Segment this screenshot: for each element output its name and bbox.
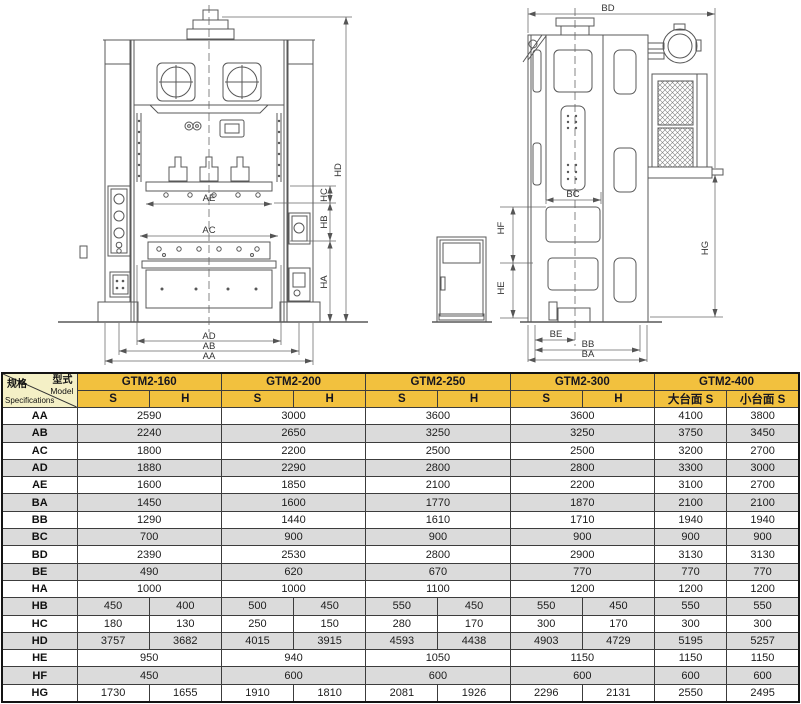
corner-model-label-zh: 型式: [53, 376, 73, 386]
spec-cell: 1290: [77, 511, 221, 528]
dim-label-HB: HB: [319, 215, 330, 228]
sub-header: H: [438, 391, 510, 408]
spec-cell: 3100: [655, 477, 727, 494]
spec-cell: 900: [221, 529, 365, 546]
sub-header: S: [221, 391, 293, 408]
spec-cell: 600: [366, 667, 510, 684]
spec-row-HD: HD37573682401539154593443849034729519552…: [2, 632, 799, 649]
spec-row-HF: HF450600600600600600: [2, 667, 799, 684]
spec-cell: 1000: [221, 580, 365, 597]
spec-cell: 2800: [510, 459, 654, 476]
spec-cell: 600: [727, 667, 799, 684]
spec-cell: 170: [438, 615, 510, 632]
spec-cell: 1150: [727, 650, 799, 667]
spec-cell: 300: [655, 615, 727, 632]
spec-sheet-page: AE AC AD AB AA HD HC HB HA BD BC HF HE H…: [0, 0, 801, 704]
spec-row-BA: BA145016001770187021002100: [2, 494, 799, 511]
spec-cell: 770: [727, 563, 799, 580]
spec-row-HA: HA100010001100120012001200: [2, 580, 799, 597]
row-label: HD: [2, 632, 77, 649]
dim-label-BA: BA: [582, 349, 595, 360]
spec-cell: 1870: [510, 494, 654, 511]
dim-label-AC: AC: [202, 225, 215, 236]
spec-cell: 3250: [366, 425, 510, 442]
spec-cell: 1655: [149, 684, 221, 702]
spec-cell: 4593: [366, 632, 438, 649]
spec-cell: 490: [77, 563, 221, 580]
spec-cell: 150: [294, 615, 366, 632]
spec-cell: 2296: [510, 684, 582, 702]
row-label: BE: [2, 563, 77, 580]
spec-cell: 900: [366, 529, 510, 546]
spec-cell: 1200: [655, 580, 727, 597]
spec-cell: 3600: [366, 408, 510, 425]
dim-label-BD: BD: [601, 3, 614, 14]
spec-cell: 2900: [510, 546, 654, 563]
model-header-gtm2-400: GTM2-400: [655, 373, 800, 391]
spec-cell: 1000: [77, 580, 221, 597]
spec-cell: 3682: [149, 632, 221, 649]
spec-cell: 1600: [77, 477, 221, 494]
spec-cell: 300: [727, 615, 799, 632]
spec-row-HB: HB450400500450550450550450550550: [2, 598, 799, 615]
spec-cell: 770: [510, 563, 654, 580]
spec-cell: 4729: [582, 632, 654, 649]
spec-cell: 450: [582, 598, 654, 615]
spec-cell: 450: [77, 598, 149, 615]
spec-cell: 1200: [727, 580, 799, 597]
row-label: HF: [2, 667, 77, 684]
spec-cell: 2495: [727, 684, 799, 702]
spec-cell: 600: [655, 667, 727, 684]
bolt-hole-dots: [567, 115, 577, 180]
corner-header: 型式 Model 规格 Specifications: [2, 373, 77, 408]
model-header-gtm2-160: GTM2-160: [77, 373, 221, 391]
model-header-gtm2-300: GTM2-300: [510, 373, 654, 391]
spec-cell: 2650: [221, 425, 365, 442]
spec-row-BD: BD239025302800290031303130: [2, 546, 799, 563]
model-header-gtm2-250: GTM2-250: [366, 373, 510, 391]
spec-cell: 3250: [510, 425, 654, 442]
spec-cell: 4903: [510, 632, 582, 649]
spec-cell: 550: [366, 598, 438, 615]
spec-cell: 250: [221, 615, 293, 632]
spec-cell: 2290: [221, 459, 365, 476]
dim-label-HE: HE: [496, 281, 507, 294]
spec-cell: 1770: [366, 494, 510, 511]
technical-drawings: AE AC AD AB AA HD HC HB HA BD BC HF HE H…: [0, 0, 801, 372]
row-label: HA: [2, 580, 77, 597]
spec-table-header: 型式 Model 规格 Specifications GTM2-160 GTM2…: [2, 373, 799, 408]
spec-cell: 2550: [655, 684, 727, 702]
dim-label-HD: HD: [333, 163, 344, 177]
spec-cell: 940: [221, 650, 365, 667]
spec-cell: 2100: [366, 477, 510, 494]
row-label: AB: [2, 425, 77, 442]
spec-row-HG: HG17301655191018102081192622962131255024…: [2, 684, 799, 702]
spec-row-BC: BC700900900900900900: [2, 529, 799, 546]
row-label: HB: [2, 598, 77, 615]
spec-row-AE: AE160018502100220031002700: [2, 477, 799, 494]
row-label: BD: [2, 546, 77, 563]
row-label: AA: [2, 408, 77, 425]
spec-cell: 1050: [366, 650, 510, 667]
sub-header: 大台面 S: [655, 391, 727, 408]
spec-cell: 3800: [727, 408, 799, 425]
spec-cell: 550: [510, 598, 582, 615]
spec-cell: 1450: [77, 494, 221, 511]
spec-cell: 1926: [438, 684, 510, 702]
spec-cell: 2200: [510, 477, 654, 494]
spec-cell: 2700: [727, 477, 799, 494]
spec-cell: 2500: [510, 442, 654, 459]
spec-row-HC: HC180130250150280170300170300300: [2, 615, 799, 632]
spec-cell: 1880: [77, 459, 221, 476]
spec-cell: 1810: [294, 684, 366, 702]
spec-table-body: AA259030003600360041003800AB224026503250…: [2, 408, 799, 703]
row-label: HG: [2, 684, 77, 702]
spec-cell: 550: [655, 598, 727, 615]
row-label: AD: [2, 459, 77, 476]
spec-row-AA: AA259030003600360041003800: [2, 408, 799, 425]
sub-header: 小台面 S: [727, 391, 799, 408]
spec-cell: 2100: [727, 494, 799, 511]
spec-cell: 3300: [655, 459, 727, 476]
spec-cell: 300: [510, 615, 582, 632]
spec-cell: 1610: [366, 511, 510, 528]
dim-label-AA: AA: [203, 351, 216, 362]
spec-row-AD: AD188022902800280033003000: [2, 459, 799, 476]
spec-cell: 700: [77, 529, 221, 546]
spec-cell: 1730: [77, 684, 149, 702]
spec-cell: 900: [510, 529, 654, 546]
sub-header: H: [294, 391, 366, 408]
spec-cell: 3130: [655, 546, 727, 563]
spec-cell: 600: [510, 667, 654, 684]
spec-cell: 1850: [221, 477, 365, 494]
spec-cell: 450: [77, 667, 221, 684]
spec-cell: 600: [221, 667, 365, 684]
spec-cell: 2131: [582, 684, 654, 702]
centerlines: [209, 5, 575, 346]
row-label: AC: [2, 442, 77, 459]
spec-cell: 3450: [727, 425, 799, 442]
row-label: AE: [2, 477, 77, 494]
spec-cell: 3000: [727, 459, 799, 476]
spec-cell: 4438: [438, 632, 510, 649]
spec-cell: 2700: [727, 442, 799, 459]
spec-cell: 2590: [77, 408, 221, 425]
spec-cell: 4015: [221, 632, 293, 649]
spec-cell: 2240: [77, 425, 221, 442]
spec-cell: 1440: [221, 511, 365, 528]
spec-cell: 670: [366, 563, 510, 580]
spec-cell: 280: [366, 615, 438, 632]
spec-cell: 1150: [510, 650, 654, 667]
model-header-gtm2-200: GTM2-200: [221, 373, 365, 391]
spec-cell: 170: [582, 615, 654, 632]
side-view-drawing: [432, 18, 723, 322]
spec-cell: 1200: [510, 580, 654, 597]
spec-row-BB: BB129014401610171019401940: [2, 511, 799, 528]
sub-header: S: [77, 391, 149, 408]
spec-cell: 1940: [655, 511, 727, 528]
corner-spec-label-zh: 规格: [7, 380, 27, 390]
spec-cell: 2390: [77, 546, 221, 563]
spec-cell: 1600: [221, 494, 365, 511]
spec-cell: 4100: [655, 408, 727, 425]
corner-spec-label-en: Specifications: [5, 397, 54, 405]
spec-cell: 770: [655, 563, 727, 580]
row-label: BC: [2, 529, 77, 546]
dim-label-HC: HC: [319, 188, 330, 202]
spec-cell: 3200: [655, 442, 727, 459]
model-header-row: 型式 Model 规格 Specifications GTM2-160 GTM2…: [2, 373, 799, 391]
spec-cell: 500: [221, 598, 293, 615]
spec-cell: 3000: [221, 408, 365, 425]
spec-row-AC: AC180022002500250032002700: [2, 442, 799, 459]
spec-cell: 2800: [366, 459, 510, 476]
spec-row-AB: AB224026503250325037503450: [2, 425, 799, 442]
sub-header-row: S H S H S H S H 大台面 S 小台面 S: [2, 391, 799, 408]
row-label: BB: [2, 511, 77, 528]
sub-header: H: [582, 391, 654, 408]
spec-cell: 620: [221, 563, 365, 580]
spec-cell: 3600: [510, 408, 654, 425]
sub-header: H: [149, 391, 221, 408]
spec-cell: 1910: [221, 684, 293, 702]
spec-cell: 450: [438, 598, 510, 615]
spec-cell: 1800: [77, 442, 221, 459]
spec-cell: 5257: [727, 632, 799, 649]
spec-cell: 2200: [221, 442, 365, 459]
spec-cell: 1710: [510, 511, 654, 528]
row-label: HC: [2, 615, 77, 632]
front-view-drawing: [58, 10, 368, 322]
dim-label-BC: BC: [566, 189, 579, 200]
spec-cell: 3130: [727, 546, 799, 563]
spec-cell: 1100: [366, 580, 510, 597]
dim-label-AE: AE: [203, 193, 216, 204]
spec-cell: 2500: [366, 442, 510, 459]
sub-header: S: [510, 391, 582, 408]
spec-cell: 950: [77, 650, 221, 667]
spec-cell: 450: [294, 598, 366, 615]
spec-cell: 900: [727, 529, 799, 546]
spec-cell: 2800: [366, 546, 510, 563]
spec-cell: 1150: [655, 650, 727, 667]
spec-row-HE: HE9509401050115011501150: [2, 650, 799, 667]
sub-header: S: [366, 391, 438, 408]
spec-cell: 2100: [655, 494, 727, 511]
spec-cell: 5195: [655, 632, 727, 649]
spec-cell: 900: [655, 529, 727, 546]
dim-label-HA: HA: [319, 275, 330, 289]
spec-cell: 3915: [294, 632, 366, 649]
spec-cell: 550: [727, 598, 799, 615]
spec-cell: 2081: [366, 684, 438, 702]
spec-cell: 3750: [655, 425, 727, 442]
spec-cell: 2530: [221, 546, 365, 563]
row-label: BA: [2, 494, 77, 511]
dim-label-BE: BE: [550, 329, 563, 340]
spec-cell: 180: [77, 615, 149, 632]
spec-row-BE: BE490620670770770770: [2, 563, 799, 580]
spec-cell: 3757: [77, 632, 149, 649]
spec-cell: 400: [149, 598, 221, 615]
row-label: HE: [2, 650, 77, 667]
dim-label-HG: HG: [700, 241, 711, 255]
spec-table: 型式 Model 规格 Specifications GTM2-160 GTM2…: [1, 372, 800, 703]
corner-model-label-en: Model: [50, 387, 73, 396]
spec-cell: 130: [149, 615, 221, 632]
spec-cell: 1940: [727, 511, 799, 528]
dim-label-HF: HF: [496, 221, 507, 234]
